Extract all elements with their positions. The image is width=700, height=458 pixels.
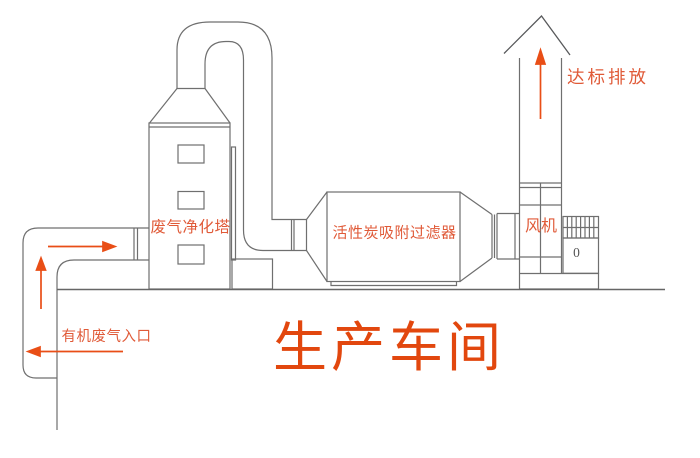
- process-diagram-canvas: 废气净化塔 活性炭吸附过滤器 风机 达标排放 有机废气入口 生产车间 0: [0, 0, 700, 458]
- tower-window: [178, 245, 204, 264]
- tower-label: 废气净化塔: [150, 218, 230, 236]
- labels: 废气净化塔 活性炭吸附过滤器 风机 达标排放 有机废气入口 生产车间 0: [62, 67, 650, 378]
- fan-plinth: [520, 274, 599, 290]
- flow-arrow-left-head: [28, 347, 40, 356]
- motor-box: [563, 238, 599, 273]
- fan-inlet-pipe: [497, 214, 520, 260]
- motor-grille-dividers: [567, 217, 593, 239]
- tower-window: [178, 192, 204, 210]
- tower-hood-right: [205, 89, 230, 124]
- stack-outlet-label: 达标排放: [567, 67, 649, 87]
- duct-outer-line: [177, 22, 307, 220]
- flow-arrow-right-head: [103, 242, 115, 251]
- tower-hood-left: [150, 89, 178, 124]
- inlet-label: 有机废气入口: [62, 328, 152, 345]
- filter-right-cone: [460, 192, 492, 282]
- inlet-pipe-inner-line: [57, 260, 149, 277]
- fan-inlet-flange: [495, 214, 498, 260]
- duct-pedestal: [232, 259, 273, 289]
- filter-label: 活性炭吸附过滤器: [332, 225, 456, 242]
- tower-side-strip: [232, 147, 236, 260]
- fan-label: 风机: [525, 217, 557, 235]
- flow-arrow-stack-head: [536, 50, 545, 64]
- flow-arrow-up-head: [37, 258, 46, 270]
- diagram-svg: 废气净化塔 活性炭吸附过滤器 风机 达标排放 有机废气入口 生产车间 0: [0, 0, 700, 458]
- motor-mark: 0: [573, 245, 580, 260]
- workshop-label: 生产车间: [273, 318, 505, 378]
- tower-window: [178, 145, 204, 163]
- stack-rain-cap: [504, 16, 570, 55]
- filter-left-cone: [307, 192, 328, 282]
- filter-base: [331, 282, 457, 286]
- flow-arrows: [28, 50, 545, 356]
